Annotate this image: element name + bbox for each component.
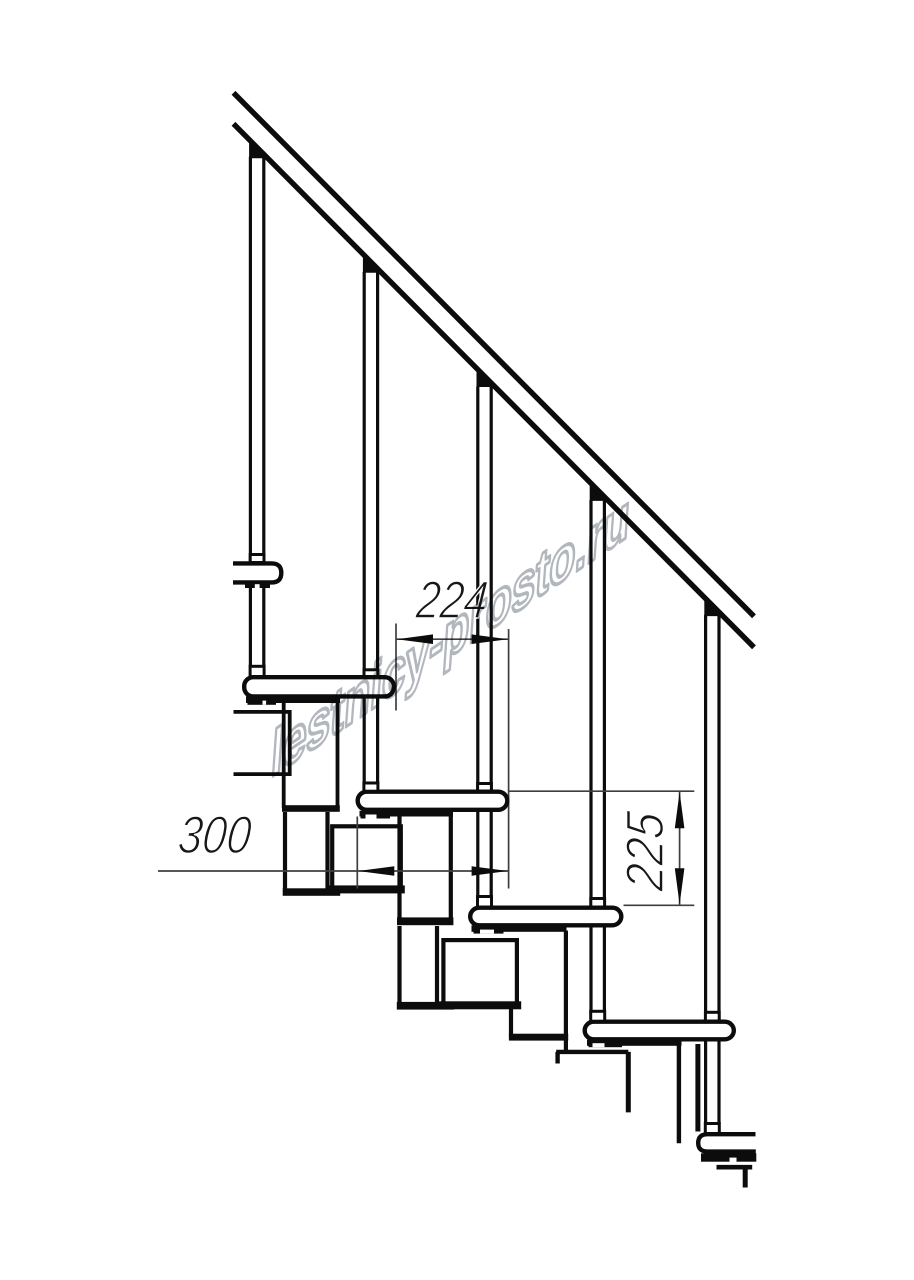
svg-text:300: 300 — [176, 806, 255, 865]
svg-text:225: 225 — [616, 809, 675, 895]
